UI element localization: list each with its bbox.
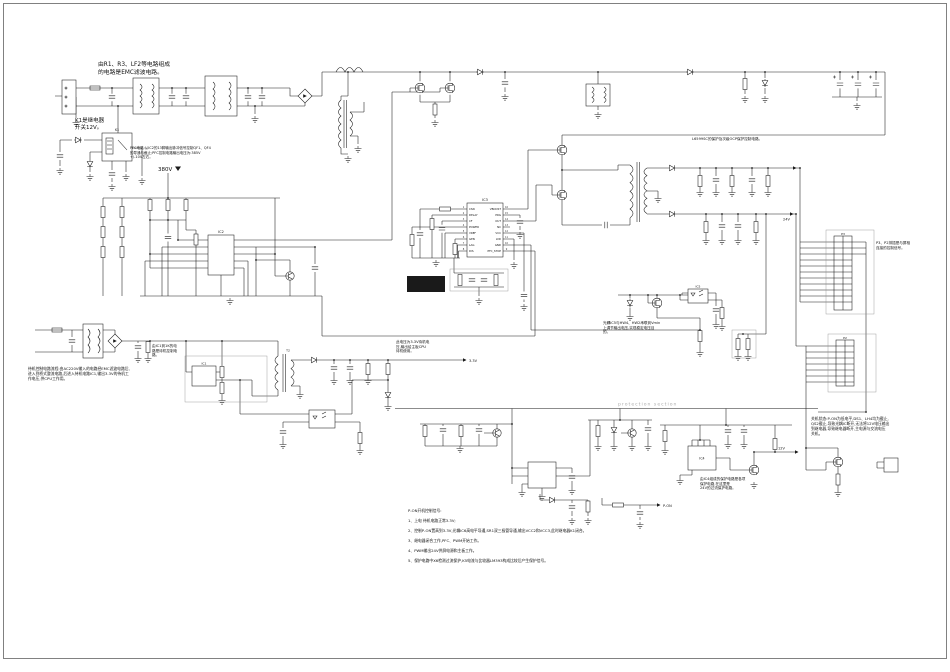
- t2-windings: [275, 354, 294, 392]
- gnd-sym: [713, 322, 720, 328]
- gnd-sym: [227, 298, 234, 304]
- gnd-sym: [735, 354, 742, 360]
- res-sym: [736, 339, 740, 350]
- res-sym: [663, 431, 667, 442]
- cap-sym: [347, 367, 353, 369]
- cap-sym: [469, 279, 475, 281]
- cap-sym: [749, 179, 755, 181]
- node: [367, 359, 369, 361]
- ic3-ref: IC3: [482, 198, 488, 202]
- gnd-sym: [345, 156, 352, 162]
- res-sym: [698, 176, 702, 187]
- res-sym: [754, 222, 758, 233]
- cap-sym: [169, 96, 175, 98]
- res-sym: [194, 234, 198, 245]
- cap-sym: [873, 83, 879, 85]
- pin-num: 7: [463, 242, 465, 245]
- gnd-sym: [355, 146, 362, 152]
- gnd-sym: [725, 442, 732, 448]
- pin-num: 10: [505, 242, 509, 245]
- tl431-sym: [385, 391, 391, 399]
- annotation-ocp: L6599SC的保护及次级OCP保护控制电路。: [692, 137, 762, 142]
- gnd-sym: [145, 356, 152, 362]
- gnd-sym: [677, 478, 684, 484]
- pin-num: 12: [505, 230, 509, 233]
- res-sym: [730, 176, 734, 187]
- gnd-sym: [347, 378, 354, 384]
- node: [274, 253, 276, 255]
- pon-title: P-ON开机控制信号:: [408, 508, 622, 513]
- gnd-sym: [697, 190, 704, 196]
- relay-ref: K1: [115, 128, 119, 132]
- pin-name: LVD: [496, 237, 501, 241]
- pin-num: 1: [463, 206, 465, 209]
- diode-sym: [310, 357, 318, 363]
- gnd-sym: [476, 298, 483, 304]
- choke-lf1: [133, 78, 159, 114]
- res-sym: [746, 339, 750, 350]
- pin-name: POWER: [469, 225, 479, 229]
- cap-sym: [521, 294, 527, 296]
- gnd-sym: [637, 522, 644, 528]
- gnd-sym: [252, 116, 259, 122]
- node: [254, 105, 256, 107]
- fet-sym: [415, 83, 425, 93]
- pin-name: LAG: [469, 243, 474, 247]
- res-sym: [386, 364, 390, 375]
- node: [699, 167, 701, 169]
- pin-num: 9: [506, 248, 508, 251]
- gnd-sym: [135, 356, 142, 362]
- node: [753, 451, 755, 453]
- pin-num: 15: [505, 212, 509, 215]
- zener-sym: [627, 299, 633, 307]
- annotation-standby-flow: 待机控制电路流程:由AC220V输入的电路经EMC滤波电路后, 进入到桥式整流电…: [28, 366, 130, 381]
- redacted-label: [407, 276, 445, 292]
- gnd-sym: [87, 174, 94, 180]
- node: [333, 359, 335, 361]
- annotation-prot-24v: 由IC4组成的保护电路是各项 保护电路,在这里是 24V的过流保护电路。: [700, 477, 745, 491]
- res-sym: [366, 364, 370, 375]
- cap-sym: [713, 179, 719, 181]
- comparator-body: [528, 462, 556, 488]
- cap-sym: [713, 309, 719, 311]
- annotation-pon: P-ON开机控制信号: 1、上电 待机电路正常3.3V; 2、控制P-ON置高到…: [408, 503, 622, 568]
- node: [764, 71, 766, 73]
- npn-sym: [286, 272, 294, 280]
- arrow-icon: [795, 450, 799, 454]
- node: [255, 259, 257, 261]
- annotation-power-off: 关机状态:P-ON为低电平,DS1、LH4均为截止, QS2截止,导致光耦IC断…: [811, 416, 889, 436]
- node: [504, 71, 506, 73]
- cap-sym: [735, 225, 741, 227]
- gnd-sym: [741, 442, 748, 448]
- ac-inlet-connector: [62, 80, 76, 114]
- node: [731, 167, 733, 169]
- cap-sym: [135, 346, 141, 348]
- res-sym: [440, 207, 451, 211]
- pin-name: GEN: [469, 237, 475, 241]
- pin-num: 5: [463, 230, 465, 233]
- pin-name: VREF: [469, 231, 476, 235]
- gnd-sym: [331, 378, 338, 384]
- cap-sym: [312, 267, 318, 269]
- ic2-body: [208, 235, 234, 275]
- opto-ic5: [688, 289, 708, 303]
- schematic-canvas: K1 IC2 380V IC3 1 2 3 4 5 6 7 8 CSN DELA…: [0, 0, 950, 672]
- pin-name: VBOOST: [490, 207, 502, 211]
- gnd-sym: [123, 174, 130, 180]
- node: [149, 253, 151, 255]
- pon-item: 5、保护电路中X6检测过流保护,K5电流与比较器LM393构成比较后产生保护信号…: [408, 558, 622, 563]
- gnd-sym: [742, 96, 749, 102]
- gnd-sym: [713, 190, 720, 196]
- arrow-icon: [790, 212, 794, 216]
- t1-windings: [630, 162, 647, 222]
- node: [449, 71, 451, 73]
- node: [167, 219, 169, 221]
- node: [839, 71, 841, 73]
- gnd-sym: [762, 96, 769, 102]
- fet-sym: [557, 145, 567, 155]
- node: [221, 340, 223, 342]
- pin-name: OUT: [495, 219, 501, 223]
- res-sym: [433, 104, 437, 115]
- diode-sym: [548, 497, 556, 503]
- cap-sym: [645, 428, 651, 430]
- gnd-sym: [703, 238, 710, 244]
- node: [314, 246, 316, 248]
- gnd-sym: [835, 490, 842, 496]
- node: [765, 213, 767, 215]
- res-sym: [184, 200, 188, 211]
- node: [865, 411, 867, 413]
- pin-name: DIS: [469, 249, 474, 253]
- p3-ref: P3: [841, 232, 845, 236]
- res-sym: [220, 367, 224, 378]
- protection-section-label: protection section: [618, 402, 677, 408]
- pon-item: 1、上电 待机电路正常3.3V;: [408, 518, 622, 523]
- pin-num: 3: [463, 218, 465, 221]
- res-sym: [704, 222, 708, 233]
- res-sym: [220, 383, 224, 394]
- res-sym: [410, 235, 414, 246]
- arrow-icon: [793, 166, 797, 170]
- v380-label: 380V: [158, 167, 172, 173]
- annotation-standby-out: 此电压为3.3V待机电 压,输出给主板CPU 待机使用。: [396, 340, 429, 354]
- gnd-sym: [595, 444, 602, 450]
- opto-standby: [309, 410, 335, 428]
- node: [419, 71, 421, 73]
- node: [679, 294, 681, 296]
- res-sym: [453, 244, 457, 255]
- gnd-sym: [735, 238, 742, 244]
- node: [185, 340, 187, 342]
- node: [239, 379, 241, 381]
- cap-sym: [109, 173, 115, 175]
- diode-sym: [87, 160, 93, 168]
- node: [742, 333, 744, 335]
- fet-sym: [557, 190, 567, 200]
- cap-sym: [837, 83, 843, 85]
- res-sym: [720, 308, 724, 319]
- cap-sym: [69, 340, 75, 342]
- res-sym: [836, 474, 840, 485]
- boost-inductor: [336, 68, 363, 73]
- gnd-sym: [751, 482, 758, 488]
- pin-name: CSN: [469, 207, 475, 211]
- gnd-sym: [357, 448, 364, 454]
- node: [875, 71, 877, 73]
- node: [774, 451, 776, 453]
- diode-sym: [74, 137, 82, 143]
- res-sym: [766, 176, 770, 187]
- node: [656, 294, 658, 296]
- cap-sym: [57, 155, 63, 157]
- choke-lf2: [205, 76, 237, 116]
- bridge-sym: [108, 334, 122, 348]
- cap-sym: [245, 96, 251, 98]
- gnd-sym: [749, 190, 756, 196]
- cap-sym: [605, 222, 607, 228]
- gnd-sym: [745, 354, 752, 360]
- annotation-emc: 由R1、R3、LF2等电路组成 的电路是EMC滤波电路。: [98, 62, 170, 77]
- gnd-sym: [719, 238, 726, 244]
- pin-num: 13: [505, 224, 509, 227]
- annotation-pfc: PFC电路:从IC2的13脚输出脉冲信号控制QF1、QF4 的导通与截止;PFC…: [130, 146, 211, 160]
- cap-sym: [165, 236, 171, 238]
- node: [795, 213, 797, 215]
- cap-sym: [481, 279, 487, 281]
- node: [619, 419, 621, 421]
- gnd-sym: [365, 378, 372, 384]
- node: [705, 213, 707, 215]
- node: [629, 294, 631, 296]
- ic1-body: [192, 366, 216, 386]
- node: [561, 169, 563, 171]
- node: [699, 439, 701, 441]
- gnd-sym: [457, 446, 464, 452]
- node: [715, 167, 717, 169]
- gnd-sym: [569, 488, 576, 494]
- node: [767, 167, 769, 169]
- ic2-ref: IC2: [218, 230, 224, 234]
- diode-sym: [611, 426, 617, 434]
- plus-marks: [833, 76, 872, 79]
- pon-item: 4、PWM输出24V供屏电源和主板工作。: [408, 548, 622, 553]
- res-sym: [743, 79, 747, 90]
- cap-sym: [502, 82, 508, 84]
- schematic-sheet: K1 IC2 380V IC3 1 2 3 4 5 6 7 8 CSN DELA…: [0, 0, 950, 672]
- node: [387, 379, 389, 381]
- res-sym: [120, 227, 124, 238]
- node: [387, 359, 389, 361]
- gnd-sym: [595, 112, 602, 118]
- gnd-sym: [502, 94, 509, 100]
- fuse-sym: [90, 86, 100, 90]
- gnd-sym: [432, 120, 439, 126]
- fuse-sym: [52, 328, 62, 332]
- npn-sym: [628, 429, 636, 437]
- diode-sym: [686, 69, 694, 75]
- pon-item: 3、继电器闭合工作,PFC、PWM开始工作。: [408, 538, 622, 543]
- cap-sym: [637, 512, 643, 514]
- pin-name: CF: [469, 219, 473, 223]
- annotation-standby-ic: 由IC1到1K的电 路是待机控制电 路。: [152, 344, 177, 358]
- v33-label: 3.3V: [469, 359, 478, 363]
- node: [597, 71, 599, 73]
- pon-label: P-ON: [663, 504, 672, 508]
- gnd-sym: [57, 168, 64, 174]
- pin-num: 14: [505, 218, 509, 221]
- ic1-ref: IC1: [202, 362, 207, 366]
- node: [725, 424, 727, 426]
- node: [149, 340, 151, 342]
- gnd-sym: [539, 494, 546, 500]
- node: [511, 423, 513, 425]
- node: [177, 239, 179, 241]
- v12-label: 12V: [778, 447, 785, 451]
- node: [699, 329, 701, 331]
- pin-num: 4: [463, 224, 465, 227]
- cap-sym: [331, 367, 337, 369]
- res-sym: [120, 247, 124, 258]
- res-sym: [458, 275, 462, 286]
- v24-label: 24V: [783, 218, 790, 222]
- res-sym: [120, 207, 124, 218]
- fet-sym: [652, 298, 662, 308]
- diode-sym: [668, 165, 676, 171]
- npn-sym: [493, 429, 501, 437]
- ic4-ref: IC4: [699, 457, 704, 461]
- cap-sym: [259, 96, 265, 98]
- cap-sym: [719, 225, 725, 227]
- node: [247, 87, 249, 89]
- gnd-sym: [611, 444, 618, 450]
- annotation-panel-conn: P3、P2排插是与屏相 连接的控制信号。: [876, 241, 910, 250]
- gnd-sym: [765, 190, 772, 196]
- res-sym: [494, 275, 498, 286]
- gnd-sym: [629, 444, 636, 450]
- res-sym: [166, 200, 170, 211]
- node: [185, 87, 187, 89]
- region-protection: IC4 12V protection section: [395, 402, 843, 501]
- cap-sym: [476, 429, 482, 431]
- gnd-sym: [854, 103, 861, 109]
- choke-sym: [586, 84, 610, 106]
- pin-num: 6: [463, 236, 465, 239]
- node: [737, 213, 739, 215]
- pin-name: GND: [495, 243, 501, 247]
- gnd-sym: [433, 260, 440, 266]
- t2-ref: T2: [285, 349, 290, 353]
- pin-num: 8: [463, 248, 465, 251]
- res-sym: [698, 331, 702, 342]
- gnd-sym: [297, 392, 304, 398]
- res-sym: [430, 219, 434, 230]
- node: [744, 71, 746, 73]
- gnd-sym: [753, 238, 760, 244]
- res-sym: [358, 433, 362, 444]
- arrow-icon: [463, 358, 467, 362]
- res-sym: [146, 342, 150, 353]
- res-sym: [773, 439, 777, 450]
- node: [261, 87, 263, 89]
- aux-connector: [884, 458, 898, 472]
- cap-sym: [439, 228, 445, 230]
- cap-sym: [855, 83, 861, 85]
- node: [349, 359, 351, 361]
- region-pfc-controller: IC2 380V: [101, 167, 322, 305]
- gnd-sym: [719, 324, 726, 330]
- gnd-sym: [109, 184, 116, 190]
- node: [167, 197, 169, 199]
- gnd-sym: [519, 490, 526, 496]
- diode-sym: [762, 79, 768, 87]
- gnd-sym: [219, 398, 226, 404]
- gnd-sym: [385, 404, 392, 410]
- diode-sym: [668, 211, 676, 217]
- ic5-ref: IC5: [696, 285, 701, 289]
- node: [117, 105, 119, 107]
- cap-sym: [725, 430, 731, 432]
- node: [171, 87, 173, 89]
- node: [755, 213, 757, 215]
- pin-name: VCC: [495, 231, 501, 235]
- node: [751, 167, 753, 169]
- node: [347, 71, 349, 73]
- pin-num: 2: [463, 212, 465, 215]
- fet-sym: [749, 465, 759, 475]
- res-sym: [596, 426, 600, 437]
- res-sym: [148, 200, 152, 211]
- cap-sym: [183, 96, 189, 98]
- node: [647, 294, 649, 296]
- gnd-sym: [627, 314, 634, 320]
- node: [721, 213, 723, 215]
- pfc-xfmr: [339, 100, 353, 148]
- cap-sym: [440, 429, 446, 431]
- relay-k1: [102, 133, 132, 161]
- gnd-sym: [697, 350, 704, 356]
- region-pwm-controller: IC3 1 2 3 4 5 6 7 8 CSN DELAY CF POWER V…: [322, 150, 700, 336]
- cap-sym: [741, 430, 747, 432]
- res-sym: [101, 207, 105, 218]
- gnd-sym: [521, 304, 528, 310]
- annotation-k1: K1是继电器 开关12V。: [75, 118, 104, 133]
- gnd-sym: [511, 262, 518, 268]
- gnd-sym: [662, 448, 669, 454]
- res-sym: [101, 247, 105, 258]
- pin-num: 11: [505, 236, 509, 239]
- res-sym: [423, 426, 427, 437]
- gnd-sym: [729, 190, 736, 196]
- pin-name: PRG: [495, 213, 501, 217]
- wires: [322, 150, 700, 336]
- res-sym: [101, 227, 105, 238]
- gnd-sym: [139, 178, 146, 184]
- res-sym: [459, 426, 463, 437]
- pin-name: PFC_STOP: [488, 249, 502, 253]
- pin-name: DELAY: [469, 213, 478, 217]
- pon-item: 2、控制P-ON置高到3.3V,光耦IC6高电平导通,SR1双三极管导通,输出V…: [408, 528, 622, 533]
- bridge-sym: [298, 89, 312, 103]
- p2-ref: P2: [843, 336, 847, 340]
- fet-sym: [445, 83, 455, 93]
- node: [857, 71, 859, 73]
- node: [511, 467, 513, 469]
- fet-sym: [833, 457, 843, 467]
